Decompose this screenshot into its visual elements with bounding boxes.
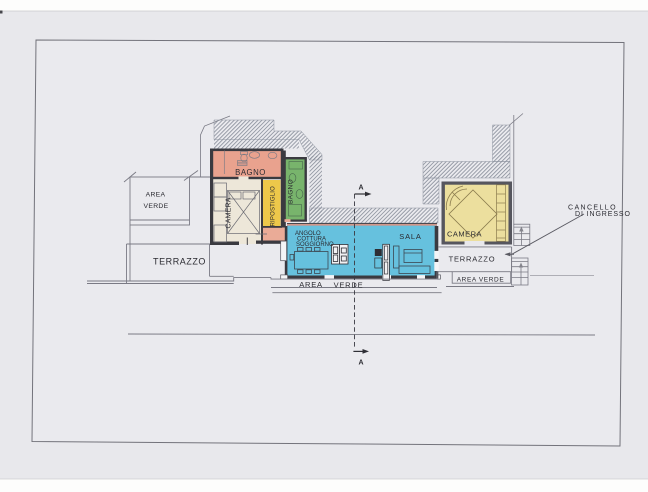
svg-text:A: A [358,359,363,366]
svg-text:BAGNO: BAGNO [288,179,295,204]
svg-text:CAMERA: CAMERA [226,197,233,228]
svg-text:TERRAZZO: TERRAZZO [153,257,206,267]
svg-text:BAGNO: BAGNO [235,168,266,177]
svg-text:DI INGRESSO: DI INGRESSO [575,211,631,218]
svg-text:RIPOSTIGLIO: RIPOSTIGLIO [271,186,277,227]
svg-text:AREA: AREA [299,280,323,289]
svg-text:AREA VERDE: AREA VERDE [457,277,505,284]
svg-text:AREA: AREA [146,192,166,199]
svg-text:VERDE: VERDE [144,203,169,210]
svg-text:TERRAZZO: TERRAZZO [449,255,496,264]
svg-text:A: A [358,184,363,191]
svg-text:VERDE: VERDE [334,281,364,290]
svg-text:SALA: SALA [399,232,421,241]
svg-text:CAMERA: CAMERA [447,230,482,239]
svg-text:SOGGIORNO: SOGGIORNO [296,242,334,248]
